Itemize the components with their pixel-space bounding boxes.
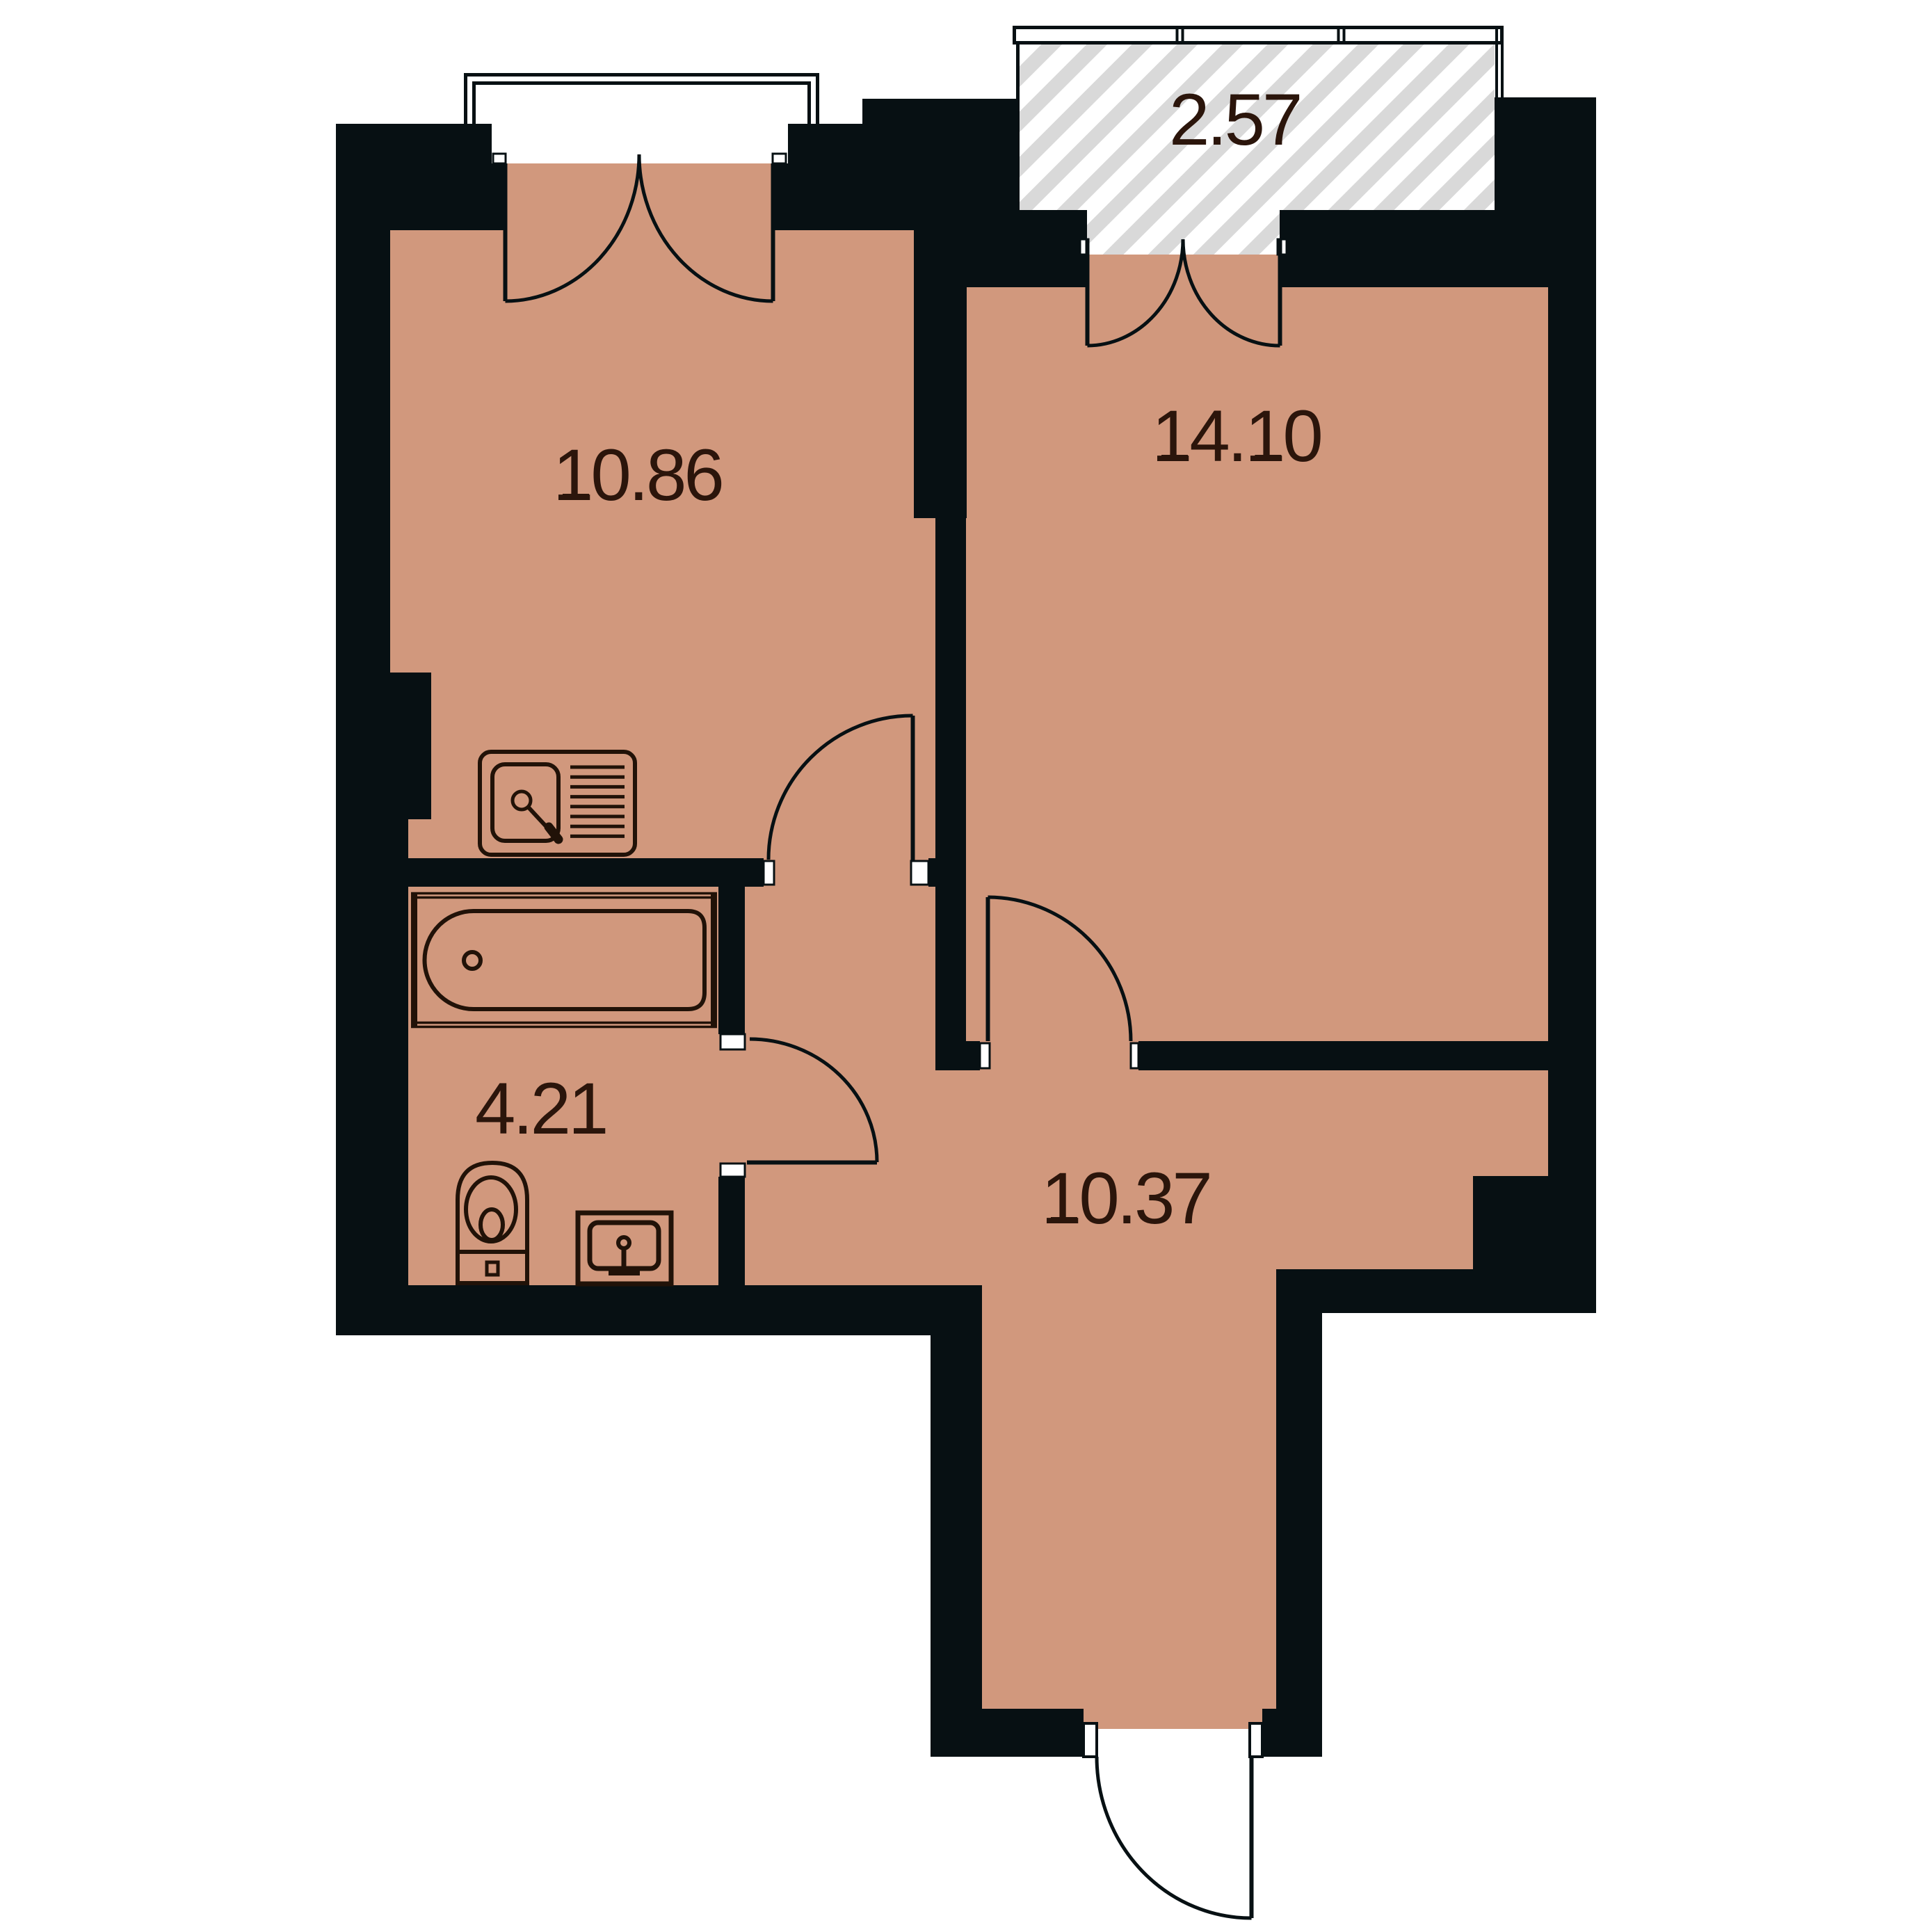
- svg-text:10.37: 10.37: [1041, 1158, 1210, 1239]
- svg-text:14.10: 14.10: [1152, 396, 1321, 477]
- svg-text:2.57: 2.57: [1169, 79, 1300, 161]
- svg-text:10.86: 10.86: [553, 435, 722, 516]
- svg-text:4.21: 4.21: [475, 1068, 606, 1150]
